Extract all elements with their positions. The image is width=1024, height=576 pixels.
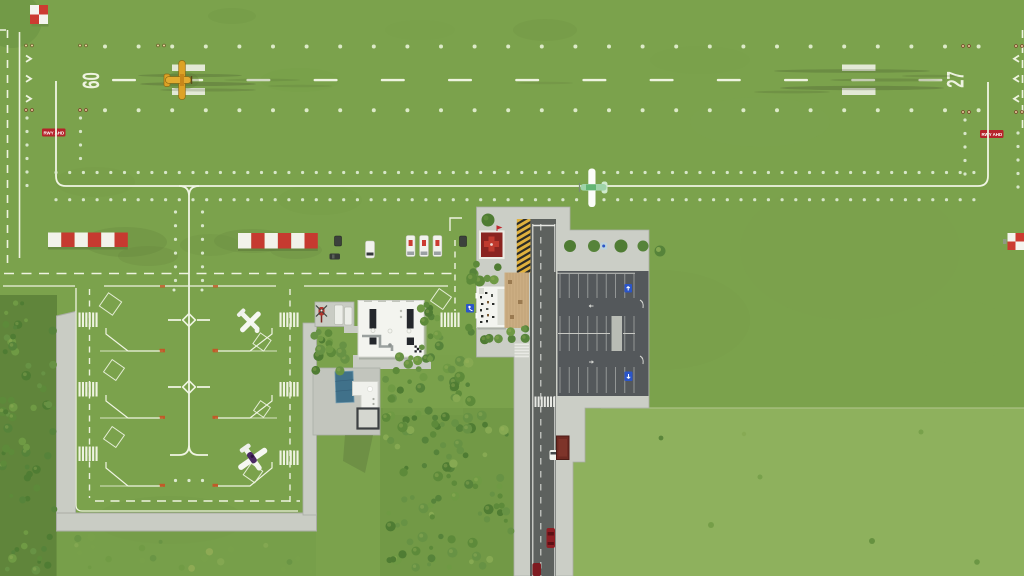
svg-text:09: 09 — [76, 72, 102, 89]
svg-text:27: 27 — [943, 71, 969, 88]
svg-text:RWY AHD: RWY AHD — [981, 132, 1002, 137]
svg-text:RWY AHD: RWY AHD — [43, 130, 64, 135]
